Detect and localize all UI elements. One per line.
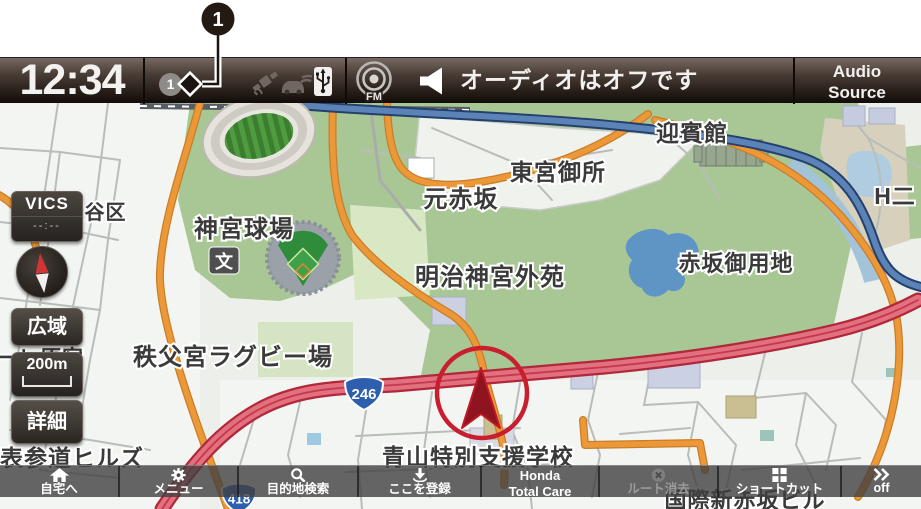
map-label: 迎賓館: [656, 120, 728, 146]
scale-bracket: [22, 376, 72, 387]
map-label: 明治神宮外苑: [415, 263, 565, 291]
audio-status-text: オーディオはオフです: [460, 58, 698, 104]
nav-screen: 文 246 418 渋谷区 神宮球場 元赤坂 東宮御所 迎賓館 明治神宮外苑 赤…: [0, 0, 921, 509]
zoom-in-button[interactable]: 詳細: [11, 400, 83, 444]
zoom-out-button[interactable]: 広域: [11, 308, 83, 346]
speaker-icon: [419, 67, 445, 95]
map-label: H二: [874, 183, 916, 209]
divider: [345, 58, 347, 104]
home-icon: [50, 468, 69, 482]
destination-search-button[interactable]: 目的地検索: [237, 466, 357, 497]
map-label: 神宮球場: [194, 215, 294, 243]
svg-text:FM: FM: [366, 91, 382, 103]
svg-text:文: 文: [215, 251, 234, 272]
menu-button[interactable]: メニュー: [118, 466, 237, 497]
car-telematics-icon: [281, 72, 313, 95]
shortcut-button[interactable]: ショートカット: [717, 466, 840, 497]
vics-button[interactable]: VICS --:--: [11, 191, 83, 242]
bar-off-button[interactable]: off: [840, 466, 921, 497]
school-icon: 文: [209, 247, 239, 274]
usb-icon: [313, 66, 333, 97]
map-label: 東宮御所: [510, 159, 606, 185]
erase-route-icon: [651, 468, 666, 482]
map-scale: 200m: [11, 352, 83, 397]
compass-needle-icon: [17, 247, 67, 297]
map-label: 元赤坂: [424, 185, 499, 213]
compass-button[interactable]: [16, 246, 68, 298]
audio-source-button[interactable]: Audio Source: [793, 58, 921, 104]
clock: 12:34: [6, 58, 138, 104]
register-location-button[interactable]: ここを登録: [357, 466, 480, 497]
honda-total-care-button[interactable]: Honda Total Care: [480, 466, 598, 497]
erase-route-button[interactable]: ルート消去: [598, 466, 717, 497]
map-label: 赤坂御用地: [678, 251, 793, 276]
divider: [143, 58, 145, 104]
home-button[interactable]: 自宅へ: [0, 466, 118, 497]
svg-text:246: 246: [351, 386, 376, 403]
map-label: 秩父宮ラグビー場: [133, 343, 333, 371]
gear-icon: [170, 468, 187, 482]
search-icon: [290, 468, 306, 482]
vics-time: --:--: [12, 216, 82, 232]
chevrons-icon: [873, 468, 890, 481]
bottom-bar: 自宅へ メニュー 目的地検索: [0, 465, 921, 497]
shortcut-grid-icon: [772, 468, 787, 482]
status-bar: 12:34 1: [0, 57, 921, 103]
fm-radio-icon: FM: [351, 61, 397, 103]
notification-count-badge: 1: [159, 73, 182, 96]
register-location-icon: [411, 468, 429, 482]
gps-satellite-icon: [251, 69, 280, 96]
